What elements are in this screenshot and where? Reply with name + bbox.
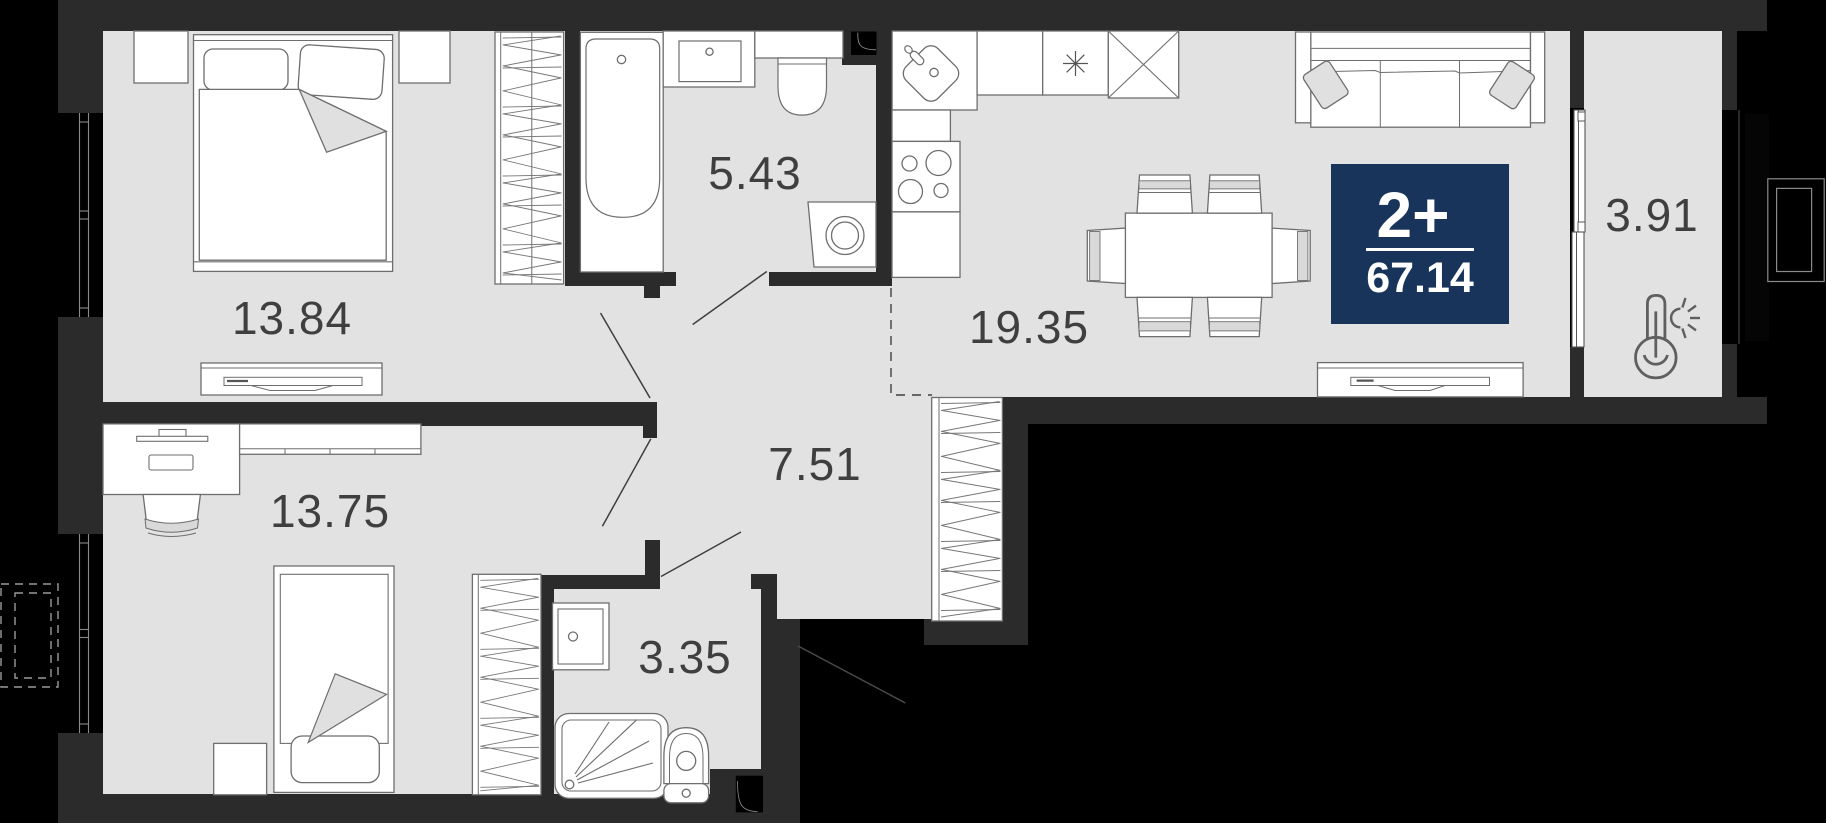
svg-text:13.84: 13.84 bbox=[232, 292, 352, 344]
svg-text:5.43: 5.43 bbox=[708, 147, 802, 199]
svg-text:19.35: 19.35 bbox=[969, 301, 1089, 353]
svg-text:2+: 2+ bbox=[1377, 179, 1450, 251]
svg-text:3.35: 3.35 bbox=[638, 631, 732, 683]
svg-text:7.51: 7.51 bbox=[768, 438, 862, 490]
svg-text:13.75: 13.75 bbox=[270, 485, 390, 537]
svg-text:67.14: 67.14 bbox=[1366, 254, 1474, 302]
svg-text:3.91: 3.91 bbox=[1605, 189, 1699, 241]
